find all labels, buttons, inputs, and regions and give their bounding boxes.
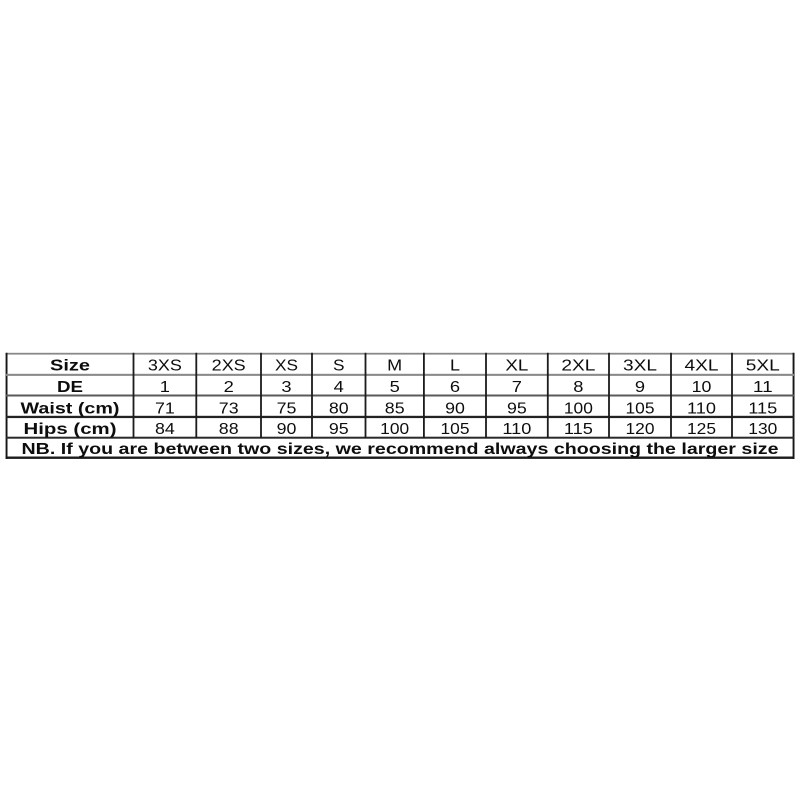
svg-text:Size: Size — [50, 357, 90, 374]
svg-text:9: 9 — [635, 379, 645, 396]
svg-text:2XS: 2XS — [212, 357, 246, 374]
svg-text:115: 115 — [748, 400, 777, 417]
svg-text:95: 95 — [507, 400, 527, 417]
svg-text:105: 105 — [626, 400, 655, 417]
svg-text:5XL: 5XL — [746, 357, 780, 374]
svg-text:DE: DE — [57, 379, 83, 396]
svg-text:XL: XL — [505, 357, 528, 374]
svg-text:84: 84 — [155, 421, 175, 438]
svg-text:120: 120 — [626, 421, 655, 438]
svg-text:90: 90 — [445, 400, 465, 417]
svg-text:3: 3 — [281, 379, 291, 396]
svg-text:5: 5 — [390, 379, 400, 396]
svg-text:7: 7 — [512, 379, 522, 396]
svg-text:1: 1 — [160, 379, 170, 396]
svg-text:95: 95 — [329, 421, 349, 438]
svg-text:6: 6 — [450, 379, 460, 396]
svg-text:XS: XS — [275, 357, 298, 374]
svg-text:11: 11 — [753, 379, 773, 396]
svg-text:4XL: 4XL — [685, 357, 719, 374]
svg-text:73: 73 — [219, 400, 239, 417]
svg-text:Waist (cm): Waist (cm) — [21, 400, 120, 417]
svg-text:3XL: 3XL — [623, 357, 657, 374]
svg-text:110: 110 — [502, 421, 531, 438]
svg-text:105: 105 — [441, 421, 470, 438]
svg-text:100: 100 — [564, 400, 593, 417]
svg-text:80: 80 — [329, 400, 349, 417]
svg-text:71: 71 — [155, 400, 175, 417]
svg-text:Hips (cm): Hips (cm) — [24, 421, 117, 438]
svg-text:8: 8 — [573, 379, 583, 396]
svg-text:NB. If you are between two siz: NB. If you are between two sizes, we rec… — [22, 441, 779, 458]
svg-text:130: 130 — [748, 421, 777, 438]
svg-text:110: 110 — [687, 400, 716, 417]
svg-text:S: S — [333, 357, 345, 374]
svg-text:88: 88 — [219, 421, 239, 438]
svg-text:100: 100 — [380, 421, 409, 438]
svg-text:85: 85 — [385, 400, 405, 417]
svg-text:115: 115 — [564, 421, 593, 438]
svg-text:90: 90 — [277, 421, 297, 438]
svg-text:L: L — [450, 357, 460, 374]
svg-text:75: 75 — [277, 400, 297, 417]
svg-text:2: 2 — [224, 379, 234, 396]
svg-text:125: 125 — [687, 421, 716, 438]
svg-text:2XL: 2XL — [561, 357, 595, 374]
svg-text:3XS: 3XS — [148, 357, 182, 374]
svg-text:4: 4 — [334, 379, 344, 396]
svg-text:M: M — [387, 357, 402, 374]
svg-text:10: 10 — [692, 379, 712, 396]
